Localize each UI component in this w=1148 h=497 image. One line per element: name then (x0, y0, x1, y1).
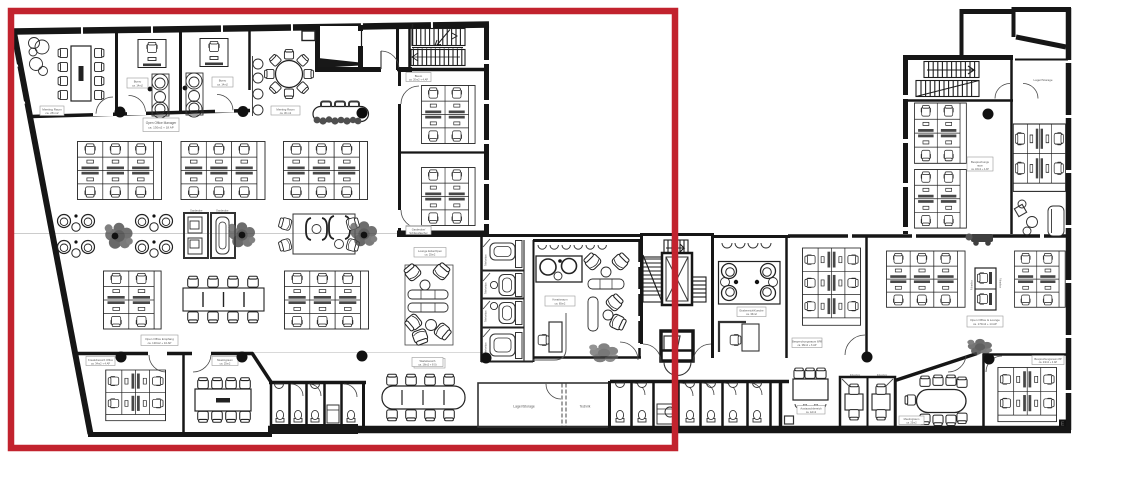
svg-text:Lager/Storage: Lager/Storage (513, 405, 535, 409)
svg-text:Technik: Technik (580, 405, 591, 409)
svg-text:Besprechungs: Besprechungs (971, 160, 989, 164)
svg-text:Meetingraum: Meetingraum (904, 417, 920, 421)
svg-text:Kreativraum: Kreativraum (552, 298, 568, 302)
svg-text:Meeting Raum: Meeting Raum (276, 107, 295, 111)
svg-text:ca. 38m2 + 6 AP: ca. 38m2 + 6 AP (797, 343, 816, 347)
svg-text:Telefonbox: Telefonbox (485, 310, 488, 322)
svg-text:ca. 18m2 + 8 St: ca. 18m2 + 8 St (418, 362, 437, 366)
svg-text:Telefonbox: Telefonbox (485, 342, 488, 354)
svg-text:ca. 30 m2: ca. 30 m2 (280, 111, 292, 115)
svg-text:Wartebereich: Wartebereich (420, 359, 436, 363)
svg-text:Buero: Buero (415, 74, 423, 78)
svg-text:Besprechungsraum 8P: Besprechungsraum 8P (1034, 357, 1062, 361)
svg-text:ca. 12m2: ca. 12m2 (806, 411, 817, 414)
svg-text:ca. 18m2 + 4 AP: ca. 18m2 + 4 AP (971, 168, 989, 171)
svg-text:ca. 130m2 + 18 AP: ca. 130m2 + 18 AP (148, 126, 173, 130)
svg-text:Besprechungsraum 6P8: Besprechungsraum 6P8 (792, 340, 822, 344)
svg-text:Buero: Buero (219, 79, 227, 83)
svg-text:ca. 170m2 + 14 AP: ca. 170m2 + 14 AP (973, 322, 997, 326)
svg-text:Austauschbereich: Austauschbereich (800, 407, 822, 411)
svg-text:raum: raum (977, 164, 983, 168)
svg-text:Garderobe: Garderobe (216, 209, 229, 213)
svg-text:Meetingraum: Meetingraum (217, 358, 233, 362)
svg-text:Fokusbox: Fokusbox (877, 374, 888, 377)
svg-text:Telefonbox: Telefonbox (485, 282, 488, 294)
svg-text:Lounge Ecke/Open: Lounge Ecke/Open (418, 249, 442, 253)
svg-text:ca. 36m2: ca. 36m2 (746, 312, 757, 316)
svg-text:E: E (1061, 421, 1065, 427)
svg-text:ca. 130m2 + 10 AP: ca. 130m2 + 10 AP (148, 341, 172, 345)
svg-text:ca. 25m2: ca. 25m2 (425, 253, 436, 257)
svg-text:Lager/Storage: Lager/Storage (1033, 78, 1052, 82)
svg-text:ca. 20m2 + 4 AP: ca. 20m2 + 4 AP (409, 77, 428, 81)
svg-text:ca. 65m2: ca. 65m2 (555, 301, 566, 305)
svg-text:Kreativbereich Office: Kreativbereich Office (88, 358, 113, 362)
svg-text:Telefonbox: Telefonbox (485, 254, 488, 266)
svg-text:Fokusbox: Fokusbox (999, 278, 1001, 289)
svg-text:Fokusbox: Fokusbox (850, 374, 861, 377)
svg-text:ca. 34m2 + 4 AP: ca. 34m2 + 4 AP (91, 361, 110, 365)
svg-text:Garderobe: Garderobe (190, 209, 203, 213)
svg-text:Essbereich/Kueche: Essbereich/Kueche (739, 309, 764, 313)
svg-text:Schliessfaecher: Schliessfaecher (409, 231, 427, 235)
svg-text:Open Office Manager: Open Office Manager (146, 121, 177, 125)
svg-text:Buero: Buero (134, 80, 142, 84)
svg-text:ca. 25m2: ca. 25m2 (906, 422, 917, 425)
svg-text:Fokusbox: Fokusbox (972, 279, 974, 290)
svg-text:ca. 23m2 + 4 AP: ca. 23m2 + 4 AP (1039, 361, 1058, 364)
svg-text:ca. 25m2: ca. 25m2 (220, 361, 231, 365)
svg-text:ca. 14m2: ca. 14m2 (132, 83, 143, 87)
svg-text:ca. 28 m2: ca. 28 m2 (45, 111, 59, 115)
svg-text:ca. 14m2: ca. 14m2 (217, 82, 228, 86)
